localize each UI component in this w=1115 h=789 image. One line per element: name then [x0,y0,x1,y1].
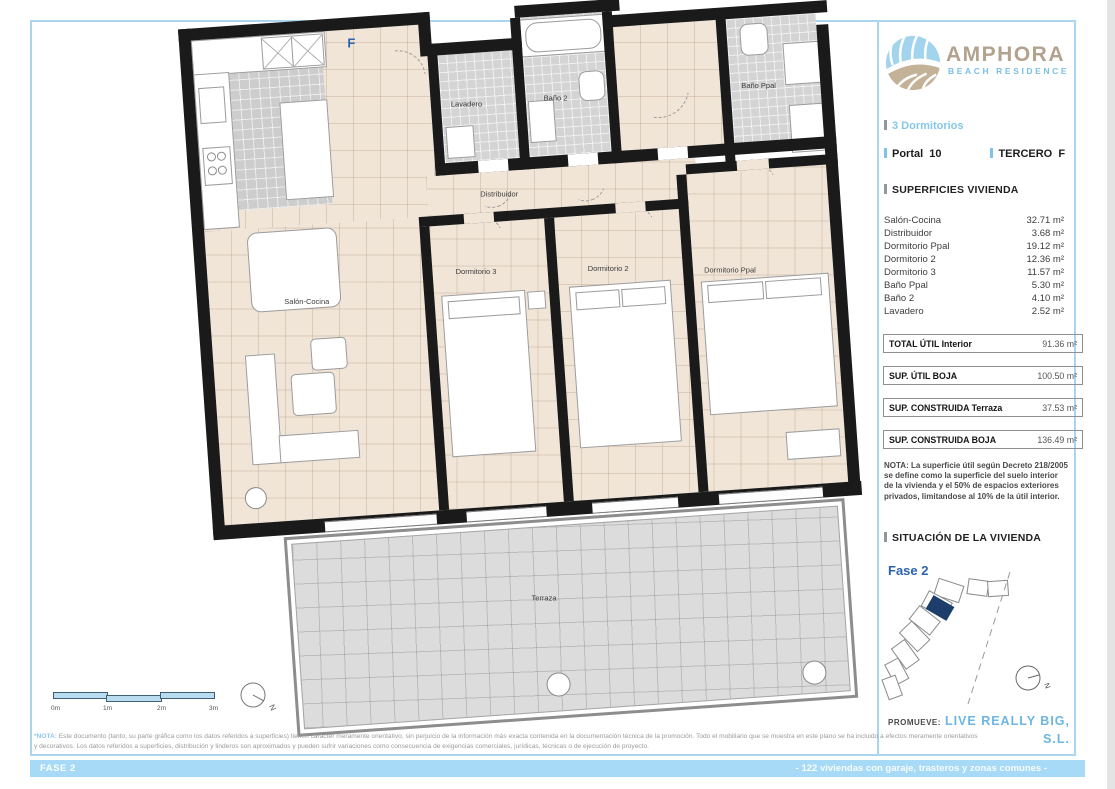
total-value: 136.49 m² [1037,435,1077,445]
tick-icon [884,120,887,130]
site-map: N [880,572,1072,708]
scale-segment [53,692,108,699]
room-label-dormitorio2: Dormitorio 2 [588,264,629,273]
toilet-bano2 [578,70,606,102]
total-value: 100.50 m² [1037,371,1077,381]
plan-sheet: Terraza F Lavadero Baño 2 Baño Ppal Dist… [0,0,1115,789]
footer-disclaimer: *NOTA: Este documento (tanto, su parte g… [34,732,1072,751]
scale-bar: 0m 1m 2m 3m [53,692,215,714]
kitchen-sink [198,86,226,124]
door-opening [478,159,509,173]
toilet-bano-ppal [739,22,769,56]
north-compass-icon: N [238,680,280,716]
disclaimer-line1: *NOTA: Este documento (tanto, su parte g… [34,732,1072,742]
terrace-drain-circle [546,672,572,698]
total-value: 37.53 m² [1042,403,1077,413]
door-opening [568,152,599,166]
sink-bano-ppal [782,41,821,85]
footer-bar-tagline: - 122 viviendas con garaje, trasteros y … [796,763,1047,774]
surface-label: Dormitorio 2 [884,254,936,265]
tick-icon [884,184,887,194]
surface-label: Baño 2 [884,293,914,304]
surface-row: Baño Ppal5.30 m² [884,280,1064,291]
promoter-label: PROMUEVE: [888,718,941,727]
page-edge-strip [1107,0,1115,789]
unit-letter-label: F [347,35,355,50]
surface-label: Dormitorio 3 [884,267,936,278]
brand-subtitle: BEACH RESIDENCE [948,66,1069,76]
surface-label: Lavadero [884,306,924,317]
hob-burner-icon [208,166,218,176]
hob-burner-icon [218,165,228,175]
brand-name: AMPHORA [946,44,1069,66]
surface-value: 11.57 m² [1027,267,1064,278]
surface-row: Dormitorio Ppal19.12 m² [884,241,1064,252]
washing-machine [445,125,475,159]
footer-bar-fase: FASE 2 [40,763,76,774]
north-letter: N [267,703,278,712]
tick-icon [884,532,887,542]
brand-logo-icon [884,34,942,92]
terrace-drain-circle [802,660,828,686]
unit-type-label: 3 Dormitorios [892,120,964,132]
scale-tick-label: 2m [157,705,166,712]
nota-paragraph: NOTA: La superficie útil según Decreto 2… [884,461,1068,502]
surface-value: 12.36 m² [1027,254,1065,265]
door-opening [615,201,646,213]
kitchen-hob [202,146,233,186]
surface-value: 32.71 m² [1027,215,1065,226]
situacion-header: SITUACIÓN DE LA VIVIENDA [884,528,1041,546]
tick-icon [884,148,887,158]
bench [786,428,842,460]
bathtub-basin [524,18,602,53]
room-label-terraza: Terraza [532,593,557,602]
surface-value: 19.12 m² [1027,241,1065,252]
hob-burner-icon [217,151,227,161]
room-label-dormitorio3: Dormitorio 3 [456,267,497,276]
armchair [310,336,348,370]
total-box: SUP. CONSTRUIDA BOJA136.49 m² [883,430,1083,449]
surface-row: Baño 24.10 m² [884,293,1064,304]
room-label-bano2: Baño 2 [544,93,568,102]
surface-label: Baño Ppal [884,280,928,291]
surface-value: 3.68 m² [1032,228,1064,239]
disclaimer-line2: y decorativos. Los datos referidos a sup… [34,742,1072,752]
scale-tick-label: 0m [51,705,60,712]
pillow [575,289,620,310]
portal-row: Portal 10 TERCERO F [884,144,1065,162]
door-opening [657,146,688,160]
kitchen-island [279,99,334,200]
door-opening [464,212,495,224]
surface-label: Distribuidor [884,228,932,239]
room-label-salon-cocina: Salón-Cocina [284,297,329,306]
nightstand [527,290,546,309]
room-label-lavadero: Lavadero [451,99,482,108]
surface-row: Salón-Cocina32.71 m² [884,215,1064,226]
surface-label: Salón-Cocina [884,215,941,226]
disclaimer-text1: Este documento (tanto, su parte gráfica … [57,733,978,740]
room-label-bano-ppal: Baño Ppal [741,81,776,90]
total-label: SUP. ÚTIL BOJA [889,371,957,381]
kitchen-appliance-icon [261,35,295,69]
surface-value: 4.10 m² [1032,293,1064,304]
north-letter: N [1042,682,1052,690]
surface-value: 5.30 m² [1032,280,1064,291]
scale-tick-label: 3m [209,705,218,712]
scale-segment [160,692,215,699]
surface-value: 2.52 m² [1032,306,1064,317]
scale-tick-label: 1m [103,705,112,712]
superficies-header: SUPERFICIES VIVIENDA [884,180,1019,198]
surface-row: Dormitorio 311.57 m² [884,267,1064,278]
fase-label: Fase 2 [888,563,928,578]
room-label-distribuidor: Distribuidor [480,189,518,198]
disclaimer-prefix: *NOTA: [34,733,57,740]
info-sidebar: AMPHORA BEACH RESIDENCE 3 Dormitorios Po… [878,20,1076,756]
brand-text: AMPHORA BEACH RESIDENCE [946,44,1069,76]
tick-icon [990,148,993,158]
surface-row: Distribuidor3.68 m² [884,228,1064,239]
total-box: TOTAL ÚTIL Interior91.36 m² [883,334,1083,353]
pillow [621,286,666,307]
footer-bar: FASE 2 - 122 viviendas con garaje, trast… [30,760,1085,777]
surface-row: Dormitorio 212.36 m² [884,254,1064,265]
surface-label: Dormitorio Ppal [884,241,949,252]
room-label-dormitorio-ppal: Dormitorio Ppal [704,266,756,275]
floor-plan: Terraza F Lavadero Baño 2 Baño Ppal Dist… [170,0,898,740]
terrace-railing: Terraza [284,498,859,737]
hob-burner-icon [207,152,217,162]
total-box: SUP. ÚTIL BOJA100.50 m² [883,366,1083,385]
surface-row: Lavadero2.52 m² [884,306,1064,317]
total-label: TOTAL ÚTIL Interior [889,339,972,349]
floor-unit-label: TERCERO F [998,148,1065,160]
superficies-title: SUPERFICIES VIVIENDA [892,184,1019,196]
unit-type: 3 Dormitorios [884,116,964,134]
sofa [279,430,361,464]
kitchen-appliance-icon [291,33,325,67]
room-floor-terraza: Terraza [291,506,851,730]
total-label: SUP. CONSTRUIDA BOJA [889,435,996,445]
portal-label: Portal 10 [892,148,942,160]
total-box: SUP. CONSTRUIDA Terraza37.53 m² [883,398,1083,417]
total-label: SUP. CONSTRUIDA Terraza [889,403,1002,413]
situacion-title: SITUACIÓN DE LA VIVIENDA [892,532,1041,544]
sink-bano2 [528,99,557,143]
coffee-table [290,371,337,416]
scale-segment [106,695,162,702]
total-value: 91.36 m² [1042,339,1077,349]
